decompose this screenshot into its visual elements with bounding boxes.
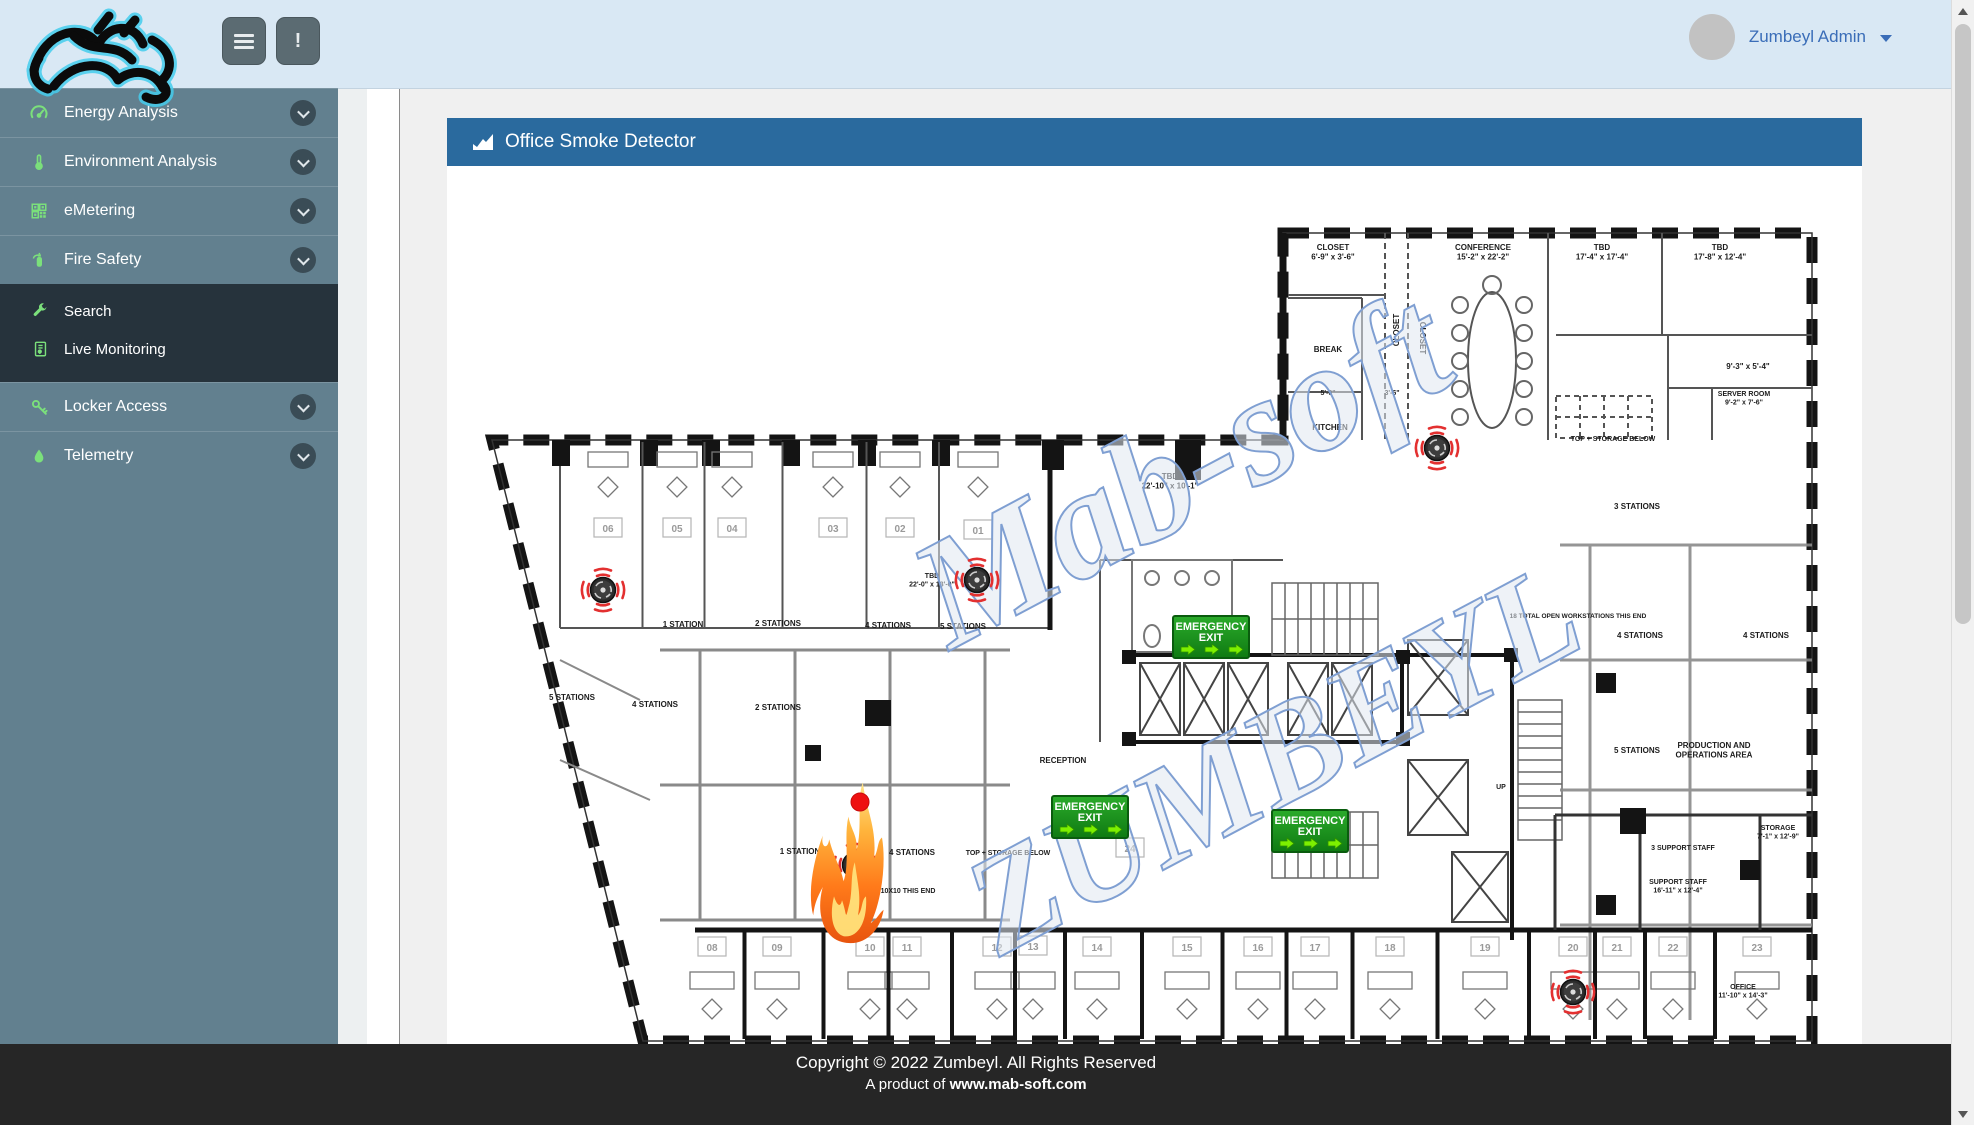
sidebar-item-fire-safety[interactable]: Fire Safety — [0, 235, 338, 284]
submenu-item-live-monitoring[interactable]: Live Monitoring — [0, 330, 338, 368]
panel-header: Office Smoke Detector — [447, 118, 1862, 166]
submenu-item-label: Live Monitoring — [64, 341, 166, 358]
chevron-down-icon — [1880, 35, 1892, 42]
sidebar-item-label: Environment Analysis — [64, 153, 217, 171]
scroll-down-arrow[interactable] — [1952, 1103, 1974, 1125]
chevron-down-icon[interactable] — [290, 443, 316, 469]
fire-safety-submenu: SearchLive Monitoring — [0, 284, 338, 382]
sidebar-item-locker-access[interactable]: Locker Access — [0, 382, 338, 431]
submenu-item-label: Search — [64, 303, 112, 320]
chevron-down-icon[interactable] — [290, 100, 316, 126]
hamburger-icon — [234, 34, 254, 37]
footer: Copyright © 2022 Zumbeyl. All Rights Res… — [0, 1044, 1952, 1125]
exclamation-icon: ! — [295, 30, 302, 53]
sidebar-item-label: Fire Safety — [64, 251, 141, 269]
chevron-down-icon[interactable] — [290, 149, 316, 175]
avatar — [1689, 14, 1735, 60]
user-menu-label: Zumbeyl Admin — [1749, 27, 1866, 47]
logo[interactable] — [12, 0, 192, 123]
sidebar-item-telemetry[interactable]: Telemetry — [0, 431, 338, 480]
copyright-text: Copyright © 2022 Zumbeyl. All Rights Res… — [0, 1053, 1952, 1073]
chevron-down-icon[interactable] — [290, 394, 316, 420]
wrench-icon — [30, 302, 50, 320]
sidebar-item-label: Telemetry — [64, 447, 133, 465]
scrollbar-thumb[interactable] — [1955, 24, 1971, 624]
meter-icon — [28, 202, 50, 220]
sidebar-toggle-button[interactable] — [222, 17, 266, 65]
sidebar-item-label: Locker Access — [64, 398, 167, 416]
fire-extinguisher-icon — [28, 250, 50, 270]
thermometer-icon — [28, 152, 50, 172]
content-gutter — [338, 88, 367, 1044]
key-icon — [28, 398, 50, 417]
floorplan-panel-body — [447, 166, 1862, 1044]
report-icon — [30, 339, 50, 359]
submenu-item-search[interactable]: Search — [0, 292, 338, 330]
user-menu[interactable]: Zumbeyl Admin — [1689, 14, 1892, 60]
product-of-text: A product of — [865, 1076, 949, 1093]
mab-soft-link[interactable]: www.mab-soft.com — [950, 1076, 1087, 1093]
panel-title: Office Smoke Detector — [505, 131, 696, 153]
sidebar-item-environment-analysis[interactable]: Environment Analysis — [0, 137, 338, 186]
sidebar-item-emetering[interactable]: eMetering — [0, 186, 338, 235]
drop-icon — [28, 446, 50, 466]
vertical-scrollbar[interactable] — [1951, 0, 1974, 1125]
sidebar: Energy AnalysisEnvironment AnalysiseMete… — [0, 88, 338, 1044]
content-divider — [399, 88, 400, 1044]
scroll-up-arrow[interactable] — [1952, 0, 1974, 22]
alerts-button[interactable]: ! — [276, 17, 320, 65]
sidebar-item-label: eMetering — [64, 202, 135, 220]
bar-chart-icon — [473, 134, 493, 150]
chevron-down-icon[interactable] — [290, 247, 316, 273]
chevron-down-icon[interactable] — [290, 198, 316, 224]
top-navbar: ! Zumbeyl Admin — [0, 0, 1952, 89]
